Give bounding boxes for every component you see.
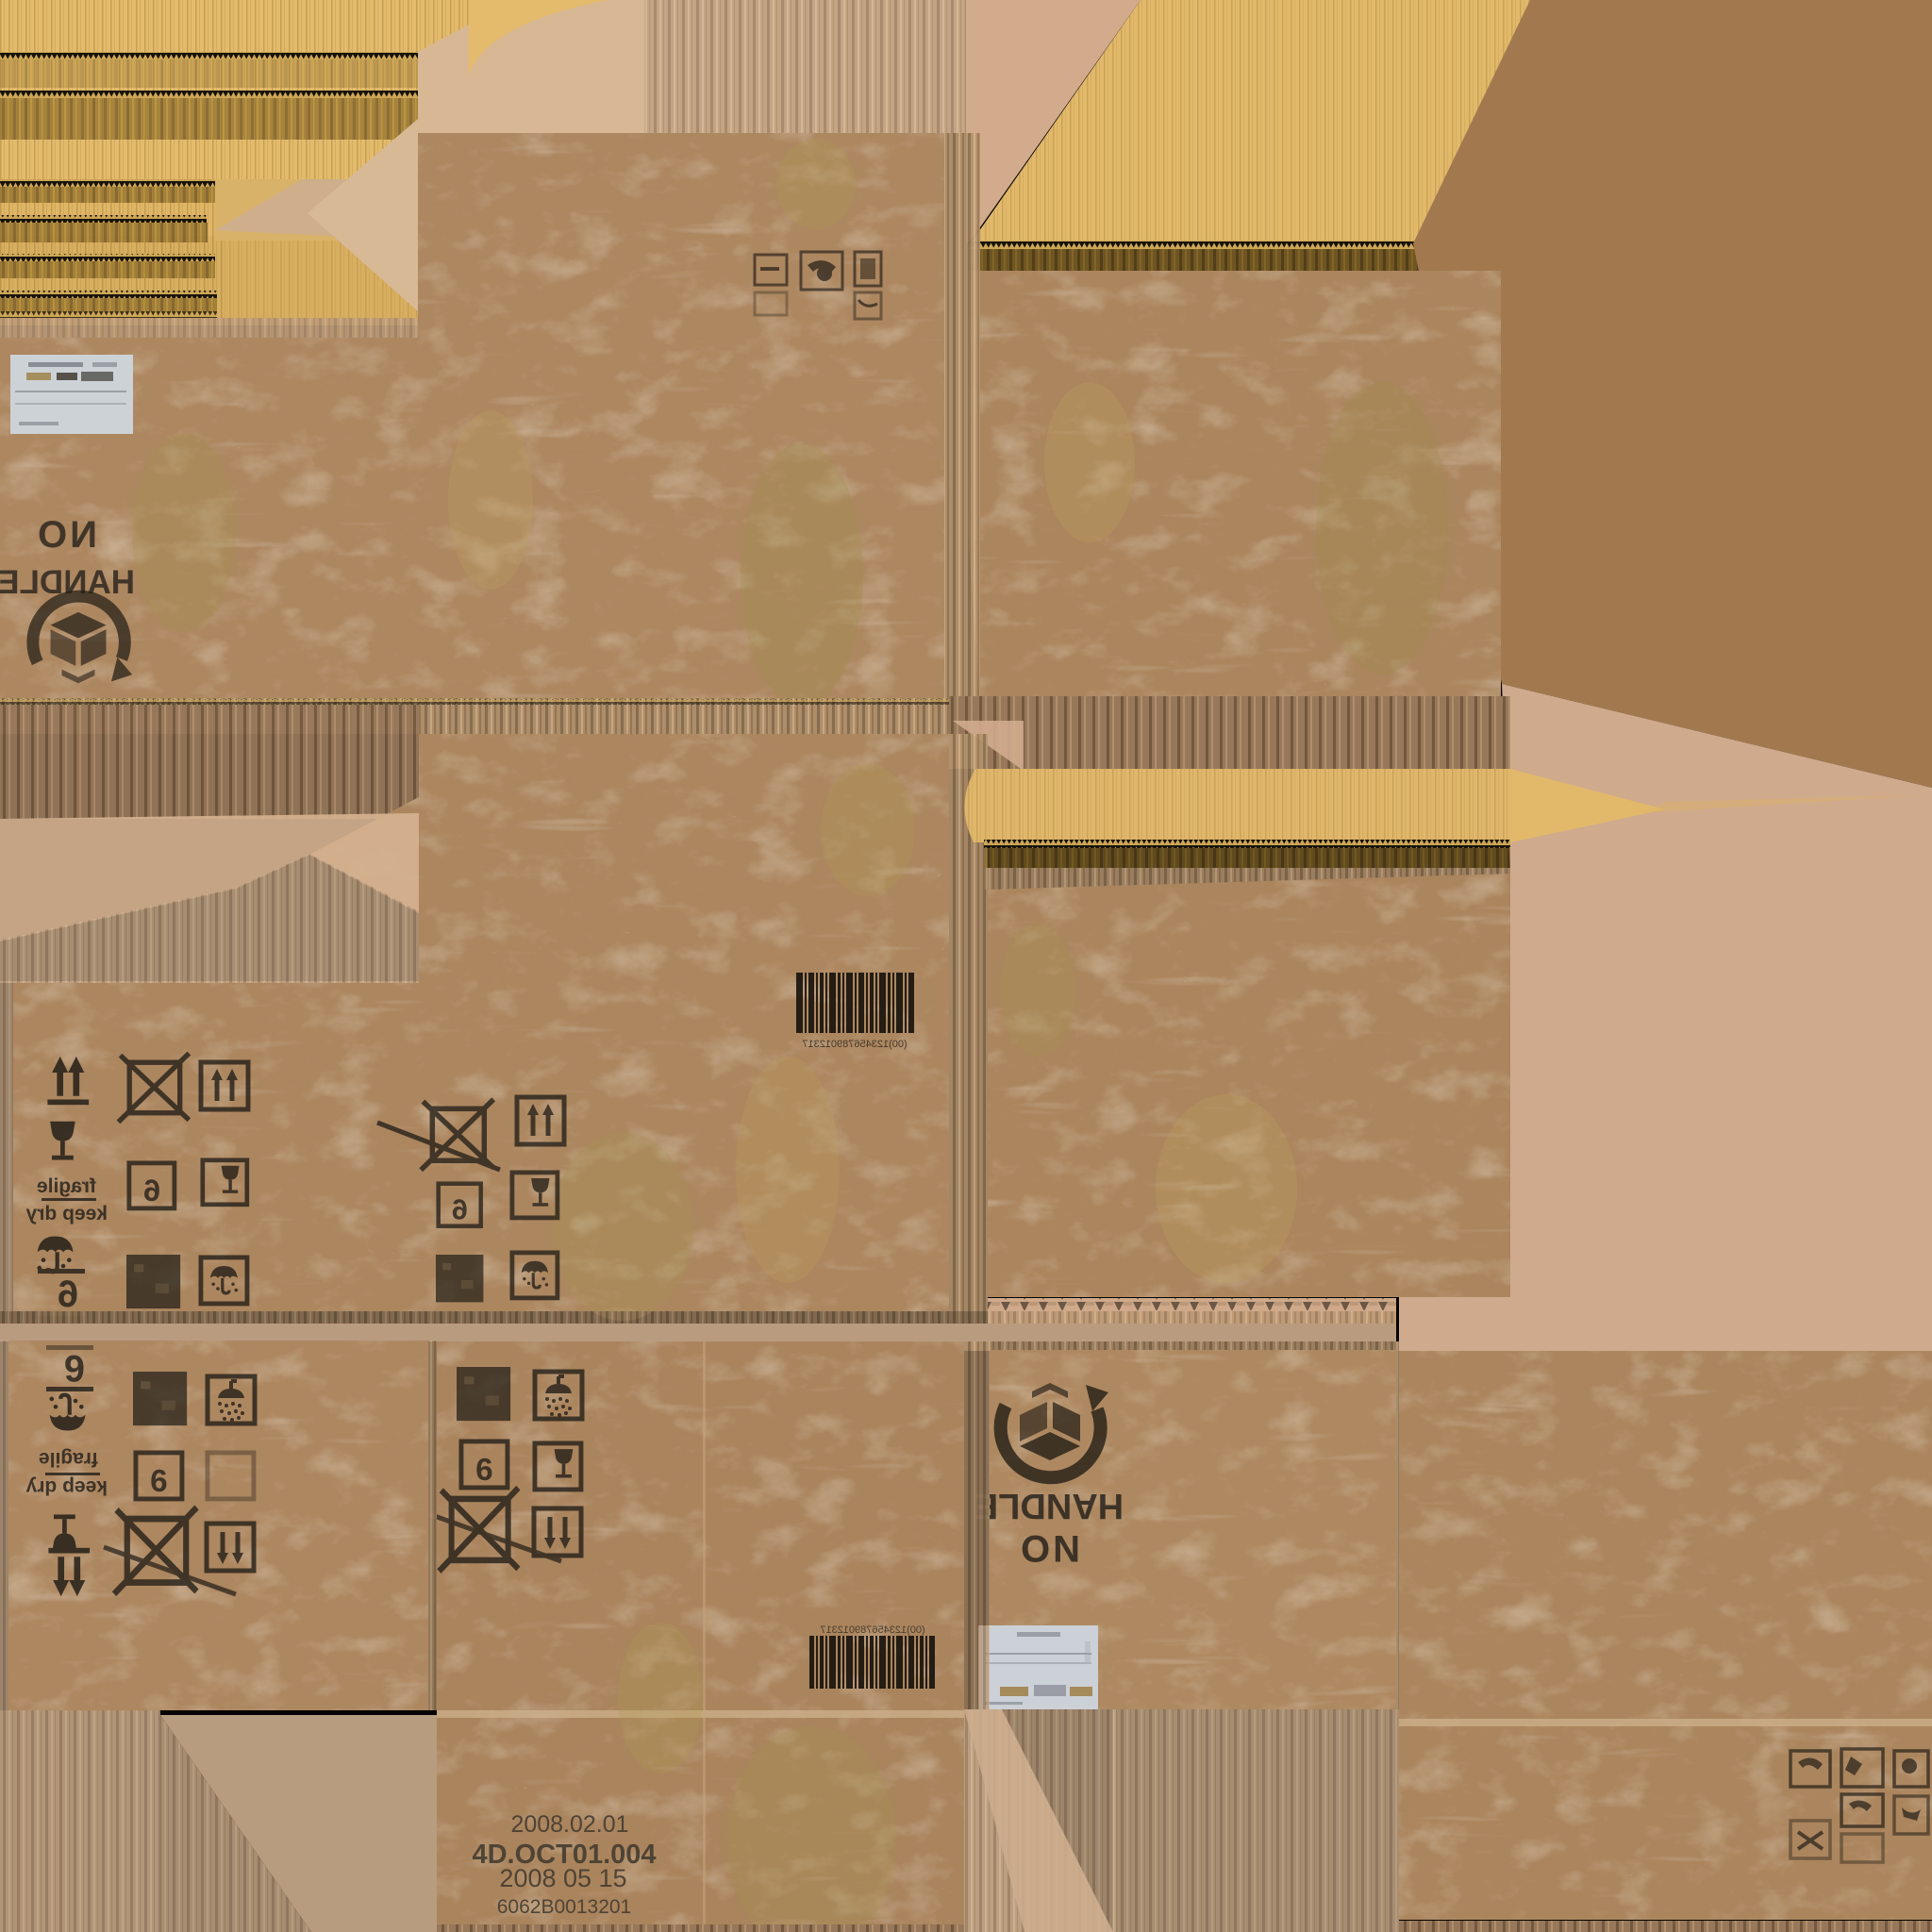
svg-text:fragile: fragile bbox=[39, 1448, 98, 1470]
svg-text:fragile: fragile bbox=[37, 1175, 96, 1197]
svg-text:keep dry: keep dry bbox=[25, 1203, 108, 1224]
svg-text:HANDLE: HANDLE bbox=[974, 1486, 1124, 1525]
svg-text:6062B0013201: 6062B0013201 bbox=[497, 1896, 631, 1918]
svg-text:6: 6 bbox=[64, 1347, 85, 1389]
svg-text:keep dry: keep dry bbox=[25, 1476, 108, 1498]
svg-text:2008 05 15: 2008 05 15 bbox=[499, 1864, 626, 1892]
svg-text:NO: NO bbox=[1018, 1527, 1080, 1569]
svg-text:2008.02.01: 2008.02.01 bbox=[510, 1811, 628, 1838]
svg-text:(00)123456789012317: (00)123456789012317 bbox=[802, 1039, 907, 1050]
svg-text:NO: NO bbox=[35, 514, 97, 556]
svg-text:(00)123456789012317: (00)123456789012317 bbox=[820, 1624, 924, 1636]
svg-text:6: 6 bbox=[58, 1274, 78, 1315]
